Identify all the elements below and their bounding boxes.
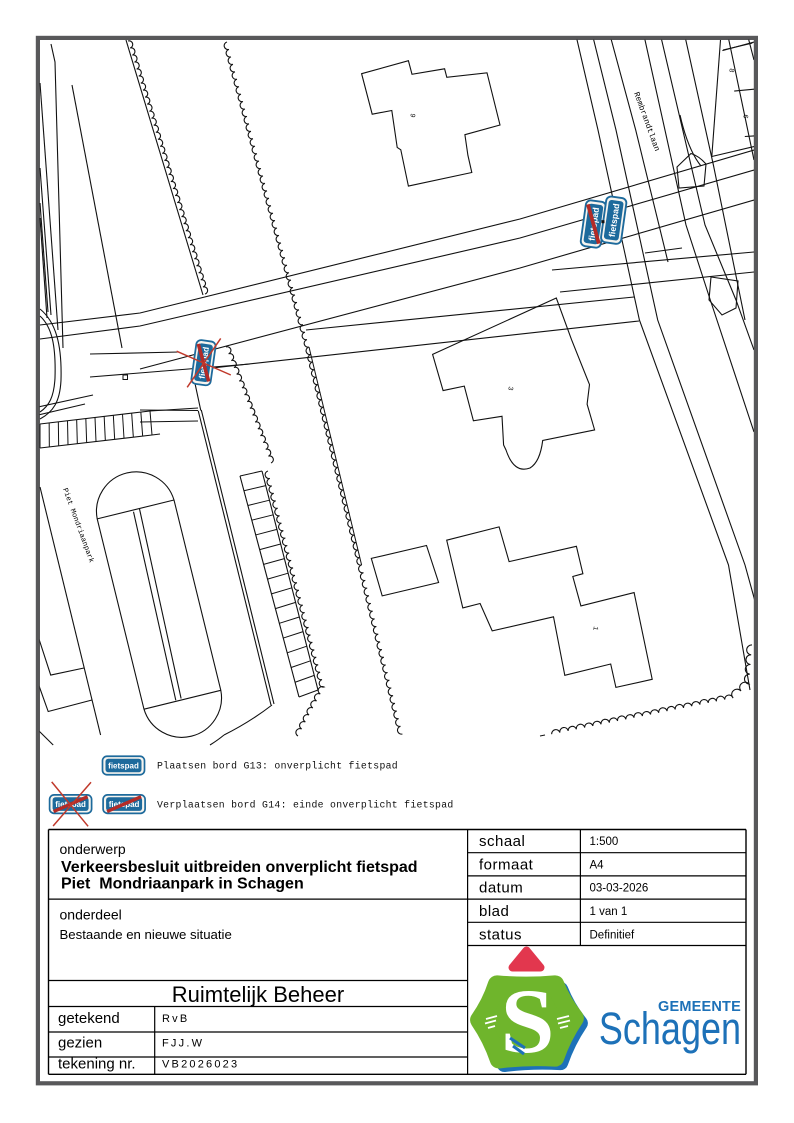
svg-text:S: S — [500, 970, 554, 1072]
svg-text:datum: datum — [479, 880, 523, 897]
svg-text:1:500: 1:500 — [590, 836, 619, 848]
svg-text:gezien: gezien — [58, 1035, 102, 1052]
svg-text:Bestaande en nieuwe situatie: Bestaande en nieuwe situatie — [60, 927, 232, 942]
svg-text:Plaatsen bord G13: onverplicht: Plaatsen bord G13: onverplicht fietspad — [157, 761, 398, 772]
svg-text:tekening nr.: tekening nr. — [58, 1056, 136, 1073]
svg-text:Definitief: Definitief — [590, 930, 636, 942]
svg-text:Schagen: Schagen — [599, 1003, 741, 1054]
svg-text:Ruimtelijk Beheer: Ruimtelijk Beheer — [172, 982, 344, 1007]
svg-text:getekend: getekend — [58, 1010, 120, 1027]
svg-text:03-03-2026: 03-03-2026 — [590, 883, 649, 895]
svg-text:schaal: schaal — [479, 833, 525, 850]
svg-text:formaat: formaat — [479, 857, 534, 874]
svg-text:Piet Mondriaanpark in Schagen: Piet Mondriaanpark in Schagen — [61, 876, 304, 893]
svg-text:FJJ.W: FJJ.W — [162, 1038, 204, 1050]
svg-text:1 van 1: 1 van 1 — [590, 906, 628, 918]
svg-text:VB2026023: VB2026023 — [162, 1059, 239, 1071]
svg-text:A4: A4 — [590, 860, 605, 872]
svg-text:blad: blad — [479, 903, 509, 920]
svg-text:status: status — [479, 927, 522, 944]
svg-text:Verkeersbesluit uitbreiden onv: Verkeersbesluit uitbreiden onverplicht f… — [61, 859, 418, 876]
svg-text:fietspad: fietspad — [108, 762, 139, 771]
svg-text:RvB: RvB — [162, 1013, 189, 1025]
svg-text:Verplaatsen bord G14: einde on: Verplaatsen bord G14: einde onverplicht … — [157, 800, 454, 811]
svg-text:onderdeel: onderdeel — [60, 907, 122, 923]
svg-text:onderwerp: onderwerp — [60, 841, 126, 857]
